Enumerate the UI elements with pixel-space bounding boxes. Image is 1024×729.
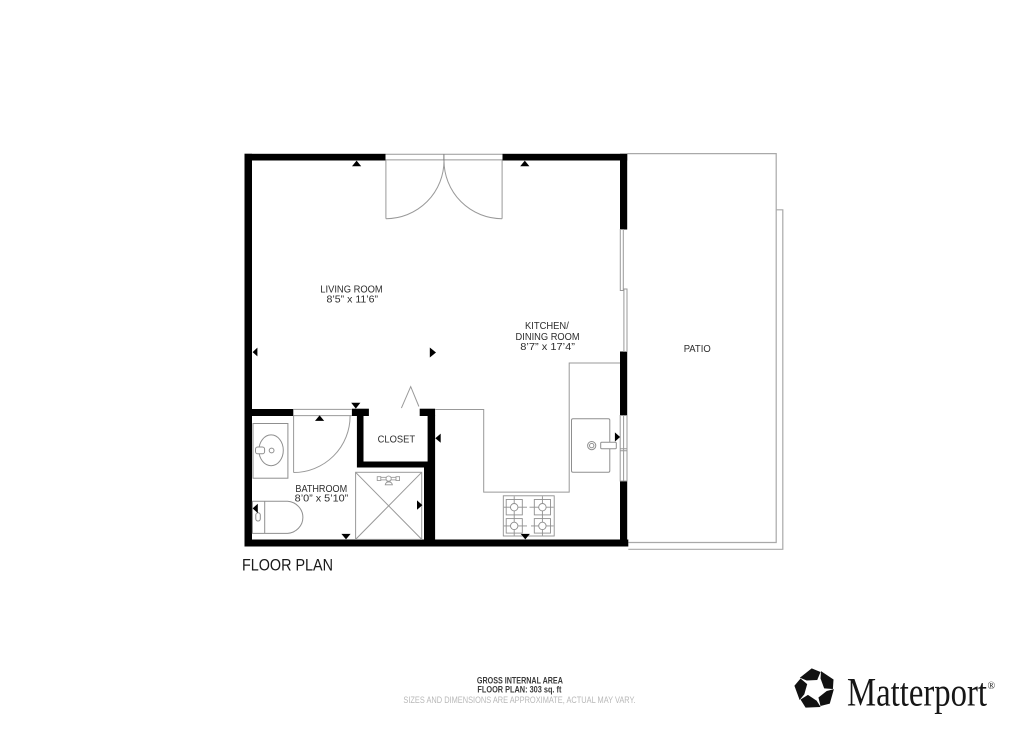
- svg-text:PATIO: PATIO: [684, 344, 711, 355]
- svg-text:KITCHEN/: KITCHEN/: [525, 321, 569, 332]
- svg-text:®: ®: [988, 681, 996, 692]
- svg-text:FLOOR PLAN: FLOOR PLAN: [242, 556, 333, 574]
- svg-text:8’0” x 5’10”: 8’0” x 5’10”: [295, 493, 349, 504]
- svg-text:Matterport: Matterport: [847, 670, 987, 715]
- svg-text:8’7” x 17’4”: 8’7” x 17’4”: [520, 342, 575, 353]
- svg-text:SIZES AND DIMENSIONS ARE APPRO: SIZES AND DIMENSIONS ARE APPROXIMATE, AC…: [403, 695, 635, 706]
- svg-text:8’5” x 11’6”: 8’5” x 11’6”: [327, 294, 379, 305]
- svg-text:CLOSET: CLOSET: [378, 434, 416, 445]
